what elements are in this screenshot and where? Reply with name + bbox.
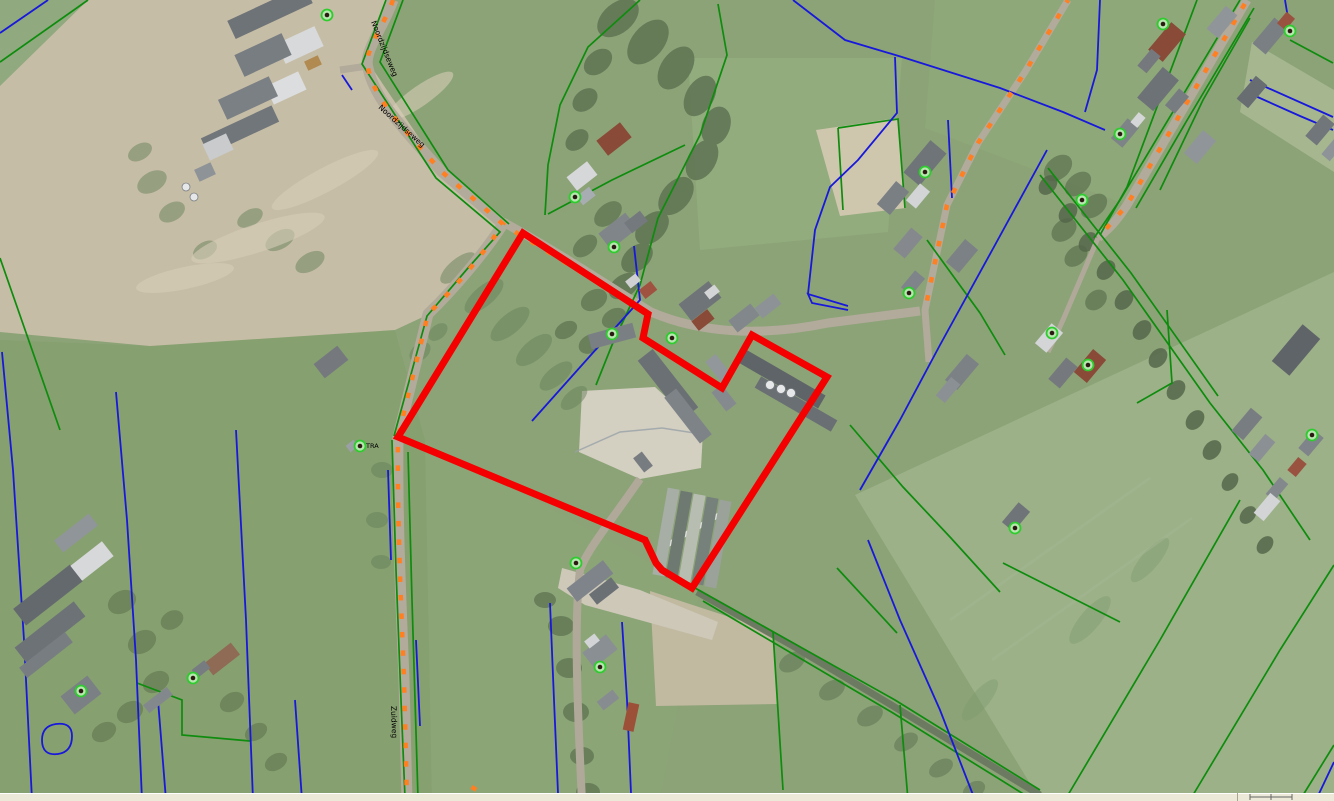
- marker-center-dot: [191, 676, 196, 681]
- map-marker-icon[interactable]: [188, 673, 199, 684]
- map-marker-icon[interactable]: [1077, 195, 1088, 206]
- map-canvas[interactable]: NoordzijdsewegNoordzijdsewegZuidwegTRA: [0, 0, 1334, 801]
- silo: [787, 389, 796, 398]
- marker-center-dot: [1310, 433, 1315, 438]
- road-label: Zuidweg: [389, 706, 399, 739]
- map-marker-icon[interactable]: [1307, 430, 1318, 441]
- marker-center-dot: [325, 13, 330, 18]
- tree-blob: [371, 555, 391, 569]
- map-marker-icon[interactable]: [609, 242, 620, 253]
- map-marker-icon[interactable]: [322, 10, 333, 21]
- marker-center-dot: [598, 665, 603, 670]
- road-label: TRA: [365, 442, 379, 450]
- status-bar-highlight: [0, 793, 1334, 794]
- map-marker-icon[interactable]: [595, 662, 606, 673]
- tree-blob: [371, 462, 393, 478]
- marker-center-dot: [907, 291, 912, 296]
- marker-center-dot: [612, 245, 617, 250]
- status-bar: [0, 793, 1334, 801]
- map-marker-icon[interactable]: [607, 329, 618, 340]
- status-bar-divider: [1237, 793, 1238, 801]
- map-marker-icon[interactable]: [1285, 26, 1296, 37]
- map-marker-icon[interactable]: [667, 333, 678, 344]
- marker-center-dot: [79, 689, 84, 694]
- marker-center-dot: [923, 170, 928, 175]
- field-patch: [0, 330, 432, 800]
- marker-center-dot: [358, 444, 363, 449]
- map-marker-icon[interactable]: [1010, 523, 1021, 534]
- tree-blob: [366, 512, 388, 528]
- marker-center-dot: [1050, 331, 1055, 336]
- map-marker-icon[interactable]: [76, 686, 87, 697]
- silo: [766, 381, 775, 390]
- map-marker-icon[interactable]: [1115, 129, 1126, 140]
- map-marker-icon[interactable]: [1047, 328, 1058, 339]
- map-marker-icon[interactable]: [904, 288, 915, 299]
- marker-center-dot: [670, 336, 675, 341]
- map-marker-icon[interactable]: [570, 192, 581, 203]
- aerial-map-svg[interactable]: NoordzijdsewegNoordzijdsewegZuidwegTRA: [0, 0, 1334, 801]
- map-marker-icon[interactable]: [1158, 19, 1169, 30]
- marker-center-dot: [1080, 198, 1085, 203]
- marker-center-dot: [1013, 526, 1018, 531]
- marker-center-dot: [1288, 29, 1293, 34]
- marker-center-dot: [574, 561, 579, 566]
- marker-center-dot: [610, 332, 615, 337]
- marker-center-dot: [1161, 22, 1166, 27]
- marker-center-dot: [1118, 132, 1123, 137]
- silo: [190, 193, 198, 201]
- marker-center-dot: [573, 195, 578, 200]
- map-marker-icon[interactable]: [1083, 360, 1094, 371]
- map-marker-icon[interactable]: [355, 441, 366, 452]
- map-marker-icon[interactable]: [920, 167, 931, 178]
- marker-center-dot: [1086, 363, 1091, 368]
- gis-map-window: NoordzijdsewegNoordzijdsewegZuidwegTRA: [0, 0, 1334, 801]
- tree-blob: [534, 592, 556, 608]
- silo: [182, 183, 190, 191]
- silo: [777, 385, 786, 394]
- map-marker-icon[interactable]: [571, 558, 582, 569]
